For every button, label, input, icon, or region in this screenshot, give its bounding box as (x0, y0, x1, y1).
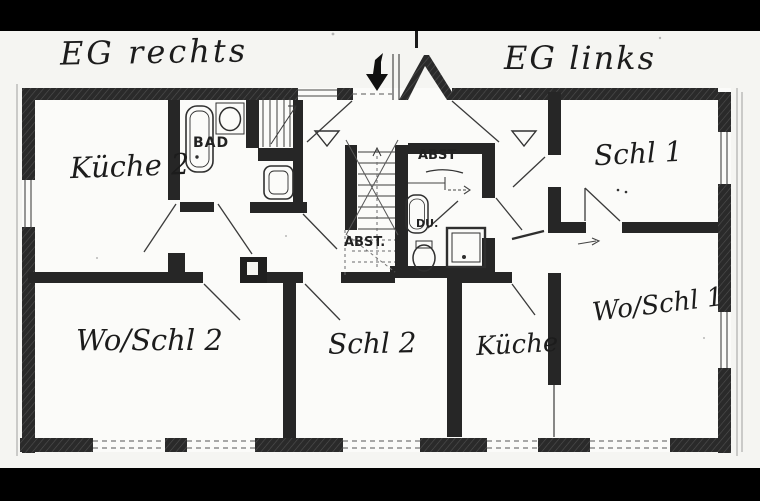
floorplan-scan: EG rechts EG links Küche 2 BAD ABST DU. … (0, 0, 760, 501)
room-label-wo-schl2: Wo/Schl 2 (76, 326, 223, 355)
room-label-schl2: Schl 2 (328, 329, 417, 359)
letterbox-top (0, 0, 760, 31)
room-label-schl1: Schl 1 (593, 138, 683, 171)
title-eg-rechts: EG rechts (60, 34, 249, 69)
title-eg-links: EG links (504, 42, 656, 74)
room-label-abst-lower: ABST. (344, 236, 385, 249)
chimney-block (240, 257, 267, 283)
letterbox-bottom (0, 468, 760, 501)
room-label-kueche2: Küche 2 (70, 150, 190, 183)
room-label-bad: BAD (193, 136, 229, 150)
room-label-du: DU. (416, 218, 438, 229)
room-label-kueche: Küche (475, 330, 559, 360)
room-label-abst-upper: ABST (418, 149, 456, 162)
